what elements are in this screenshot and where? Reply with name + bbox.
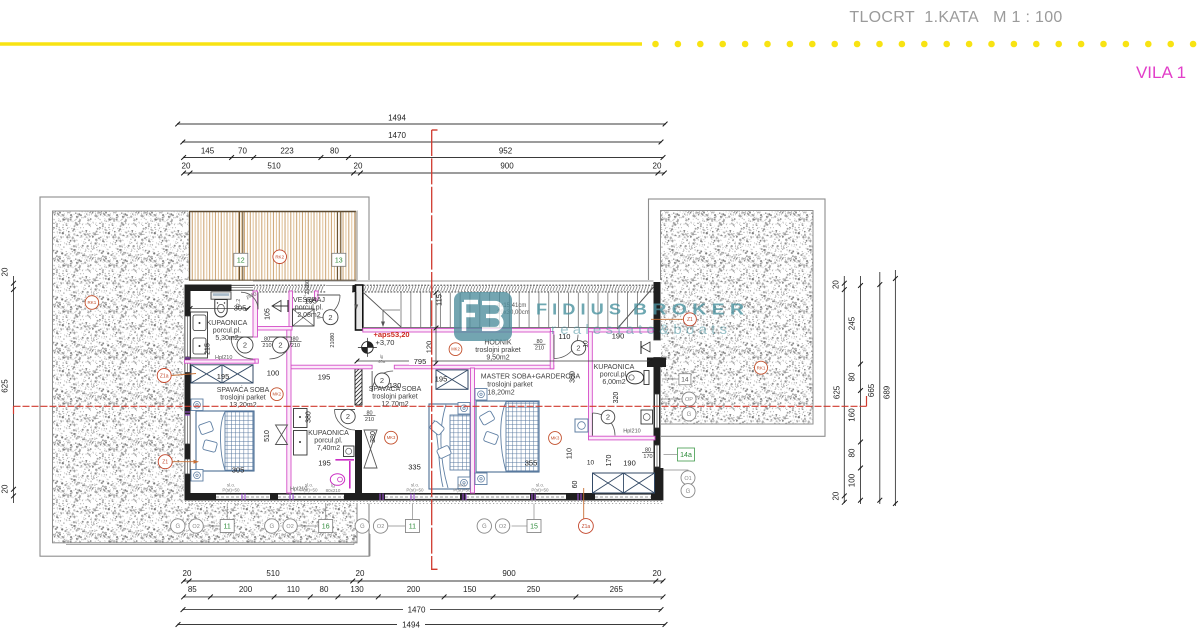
- svg-text:215: 215: [205, 343, 212, 355]
- svg-text:P(st)=50: P(st)=50: [531, 488, 549, 493]
- svg-text:KUPAONICA: KUPAONICA: [207, 320, 248, 327]
- svg-text:952: 952: [499, 147, 513, 156]
- svg-text:2: 2: [380, 376, 384, 385]
- svg-text:210: 210: [535, 346, 544, 352]
- svg-text:170: 170: [643, 454, 652, 460]
- svg-text:210: 210: [262, 343, 271, 349]
- svg-text:510: 510: [266, 569, 280, 578]
- svg-text:G: G: [482, 524, 487, 530]
- svg-text:145: 145: [201, 147, 215, 156]
- svg-text:11: 11: [409, 524, 416, 531]
- svg-text:SPAVAĆA SOBA: SPAVAĆA SOBA: [217, 385, 270, 394]
- svg-text:Z1a: Z1a: [582, 524, 591, 530]
- svg-text:795: 795: [414, 357, 427, 366]
- svg-text:80: 80: [848, 448, 857, 457]
- svg-text:16: 16: [322, 524, 330, 531]
- svg-text:80: 80: [305, 280, 311, 286]
- svg-text:195: 195: [318, 373, 331, 382]
- svg-text:170: 170: [606, 455, 613, 467]
- svg-text:20: 20: [832, 280, 841, 289]
- svg-text:625: 625: [833, 385, 842, 399]
- svg-text:troslojni parket: troslojni parket: [372, 394, 418, 401]
- svg-text:MK2: MK2: [451, 347, 460, 352]
- svg-text:MK3: MK3: [551, 436, 560, 441]
- svg-text:18,20m2: 18,20m2: [487, 390, 514, 397]
- svg-text:355: 355: [525, 459, 538, 468]
- svg-text:Hpl210: Hpl210: [623, 429, 640, 435]
- svg-text:195: 195: [318, 459, 331, 468]
- svg-text:P(st)=50: P(st)=50: [222, 488, 240, 493]
- svg-text:625: 625: [1, 379, 10, 393]
- svg-text:20: 20: [183, 569, 192, 578]
- svg-text:O2: O2: [192, 524, 199, 530]
- svg-text:665: 665: [867, 383, 876, 397]
- svg-text:r e a l e s t a t e & b o: r e a l e s t a t e & b o a t s: [551, 322, 727, 337]
- svg-text:70: 70: [238, 147, 247, 156]
- svg-text:10: 10: [583, 340, 590, 348]
- svg-text:O2: O2: [286, 524, 293, 530]
- svg-text:20: 20: [1, 484, 10, 493]
- svg-text:200: 200: [239, 585, 253, 594]
- svg-text:porcul.pl.: porcul.pl.: [295, 305, 323, 312]
- svg-text:12,70m2: 12,70m2: [381, 401, 408, 408]
- svg-text:305: 305: [232, 466, 245, 475]
- svg-text:KUPAONICA: KUPAONICA: [594, 364, 635, 371]
- svg-text:210: 210: [291, 343, 300, 349]
- svg-text:2: 2: [606, 413, 610, 422]
- svg-text:G: G: [686, 489, 691, 495]
- svg-text:190: 190: [623, 459, 636, 468]
- svg-text:195: 195: [435, 375, 448, 384]
- svg-text:110: 110: [287, 585, 300, 594]
- svg-text:20: 20: [182, 162, 191, 171]
- svg-text:60: 60: [572, 481, 579, 489]
- svg-text:11: 11: [224, 524, 231, 531]
- svg-text:20: 20: [1, 267, 10, 276]
- svg-text:5,30m2: 5,30m2: [215, 335, 238, 342]
- svg-text:G: G: [360, 524, 365, 530]
- svg-text:1494: 1494: [388, 114, 406, 123]
- svg-text:130: 130: [389, 381, 402, 390]
- svg-text:150: 150: [463, 585, 477, 594]
- svg-text:O2: O2: [499, 524, 506, 530]
- svg-text:305: 305: [234, 304, 247, 313]
- svg-text:14a: 14a: [680, 452, 692, 459]
- svg-text:porcul.pl.: porcul.pl.: [600, 372, 628, 379]
- svg-text:+3,70: +3,70: [376, 338, 395, 347]
- svg-text:110: 110: [566, 448, 573, 459]
- svg-text:O1: O1: [684, 476, 691, 482]
- svg-text:20: 20: [832, 491, 841, 500]
- svg-text:250: 250: [527, 585, 541, 594]
- svg-text:20: 20: [653, 569, 662, 578]
- svg-text:MASTER SOBA+GARDEROBA: MASTER SOBA+GARDEROBA: [481, 374, 581, 381]
- svg-text:900: 900: [502, 569, 516, 578]
- svg-text:80: 80: [330, 147, 339, 156]
- svg-text:210: 210: [305, 285, 311, 294]
- svg-text:B R O K E R: B R O K E R: [633, 302, 744, 319]
- svg-text:40a: 40a: [378, 359, 386, 364]
- svg-text:100: 100: [848, 473, 857, 487]
- svg-text:2: 2: [328, 313, 332, 322]
- svg-text:O2: O2: [377, 524, 384, 530]
- svg-text:2: 2: [278, 341, 282, 350]
- svg-text:80: 80: [330, 333, 336, 339]
- svg-text:80: 80: [848, 372, 857, 381]
- svg-text:195: 195: [217, 372, 230, 381]
- svg-text:210: 210: [365, 417, 374, 423]
- svg-text:RK1: RK1: [88, 300, 97, 305]
- svg-text:245: 245: [848, 316, 857, 330]
- svg-text:Hpl210: Hpl210: [215, 355, 232, 361]
- svg-text:MK2: MK2: [272, 392, 281, 397]
- svg-text:20: 20: [356, 569, 365, 578]
- svg-text:KUPAONICA: KUPAONICA: [308, 430, 349, 437]
- svg-text:RK1: RK1: [757, 365, 766, 370]
- svg-text:6,00m2: 6,00m2: [602, 379, 625, 386]
- svg-text:2: 2: [346, 412, 350, 421]
- svg-text:20: 20: [354, 162, 363, 171]
- svg-text:80x210: 80x210: [326, 488, 341, 493]
- svg-text:7,40m2: 7,40m2: [317, 445, 340, 452]
- svg-text:Z1: Z1: [162, 460, 168, 466]
- svg-text:14: 14: [681, 377, 689, 384]
- svg-text:G: G: [175, 524, 180, 530]
- svg-text:P(st)=50: P(st)=50: [300, 488, 318, 493]
- svg-text:troslojni praket: troslojni praket: [475, 347, 521, 354]
- svg-text:689: 689: [883, 385, 892, 399]
- svg-text:15: 15: [530, 524, 538, 531]
- svg-text:195: 195: [304, 297, 317, 306]
- svg-text:P(st)=50: P(st)=50: [406, 488, 424, 493]
- svg-text:335: 335: [408, 463, 421, 472]
- svg-text:troslojni parket: troslojni parket: [487, 382, 533, 389]
- svg-text:RK2: RK2: [275, 254, 284, 259]
- svg-text:1494: 1494: [402, 621, 420, 630]
- svg-text:320: 320: [613, 392, 620, 404]
- svg-text:OP: OP: [685, 397, 693, 403]
- svg-text:115: 115: [435, 294, 444, 306]
- svg-text:12: 12: [237, 257, 245, 264]
- svg-text:380: 380: [370, 431, 377, 443]
- svg-text:P(st)=50: P(st)=50: [453, 488, 471, 493]
- svg-text:100: 100: [267, 369, 280, 378]
- svg-text:350: 350: [570, 371, 577, 383]
- svg-text:105: 105: [265, 308, 272, 320]
- svg-text:VILA 1: VILA 1: [1136, 63, 1186, 82]
- svg-text:TLOCRT 1.KATA M 1 : 100: TLOCRT 1.KATA M 1 : 100: [849, 9, 1062, 26]
- svg-text:MK3: MK3: [387, 435, 396, 440]
- svg-text:380: 380: [306, 411, 313, 423]
- svg-text:510: 510: [264, 430, 271, 442]
- svg-text:Z1a: Z1a: [160, 373, 169, 379]
- svg-text:2,08m2: 2,08m2: [297, 312, 320, 319]
- svg-text:510: 510: [267, 162, 281, 171]
- svg-text:troslojni parket: troslojni parket: [220, 395, 266, 402]
- svg-text:13: 13: [335, 257, 343, 264]
- svg-text:9,50m2: 9,50m2: [486, 355, 509, 362]
- svg-text:160: 160: [848, 408, 857, 422]
- svg-text:2: 2: [576, 344, 580, 353]
- svg-text:200: 200: [407, 585, 421, 594]
- svg-text:porcul.pl.: porcul.pl.: [213, 328, 241, 335]
- svg-text:80: 80: [320, 585, 329, 594]
- svg-text:20: 20: [653, 162, 662, 171]
- svg-text:10: 10: [587, 460, 595, 467]
- svg-text:F I D I U S: F I D I U S: [536, 302, 621, 319]
- svg-text:210: 210: [330, 338, 336, 347]
- svg-text:265: 265: [610, 585, 624, 594]
- svg-text:223: 223: [280, 147, 294, 156]
- svg-text:85: 85: [188, 585, 197, 594]
- svg-text:G: G: [687, 412, 692, 418]
- svg-text:porcul.pl.: porcul.pl.: [314, 438, 342, 445]
- svg-text:1470: 1470: [388, 131, 406, 140]
- svg-text:130: 130: [350, 585, 364, 594]
- svg-text:1470: 1470: [408, 606, 426, 615]
- svg-text:900: 900: [500, 162, 514, 171]
- svg-text:G: G: [269, 524, 274, 530]
- svg-text:2: 2: [243, 341, 247, 350]
